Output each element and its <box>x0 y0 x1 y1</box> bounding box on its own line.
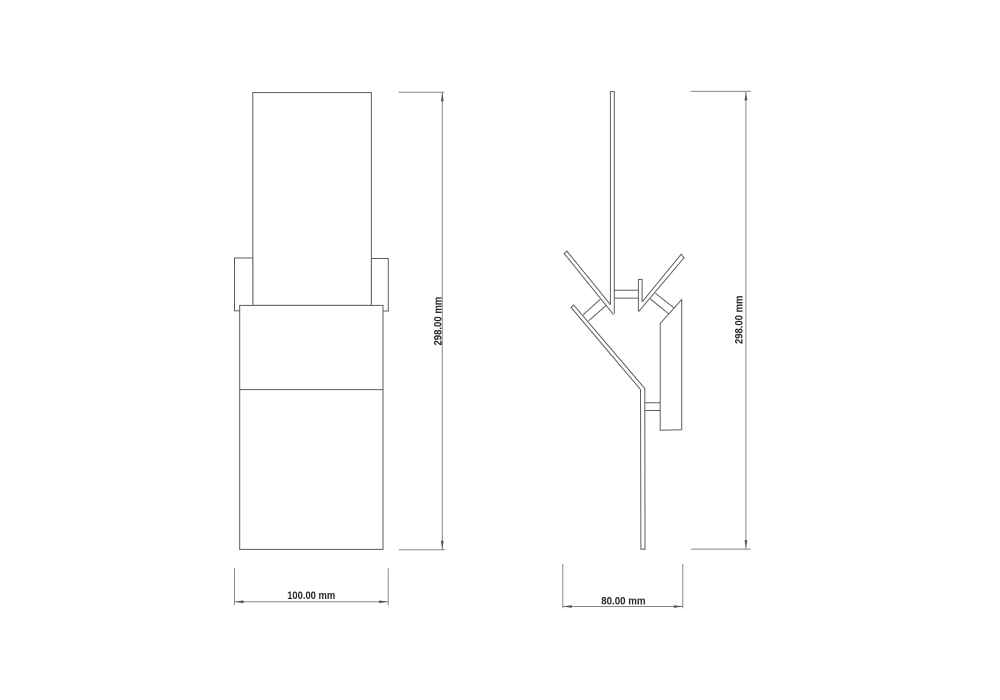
svg-text:298.00 mm: 298.00 mm <box>734 295 746 344</box>
svg-text:80.00 mm: 80.00 mm <box>601 595 646 607</box>
svg-text:100.00 mm: 100.00 mm <box>287 590 335 602</box>
svg-text:298.00 mm: 298.00 mm <box>432 297 444 346</box>
